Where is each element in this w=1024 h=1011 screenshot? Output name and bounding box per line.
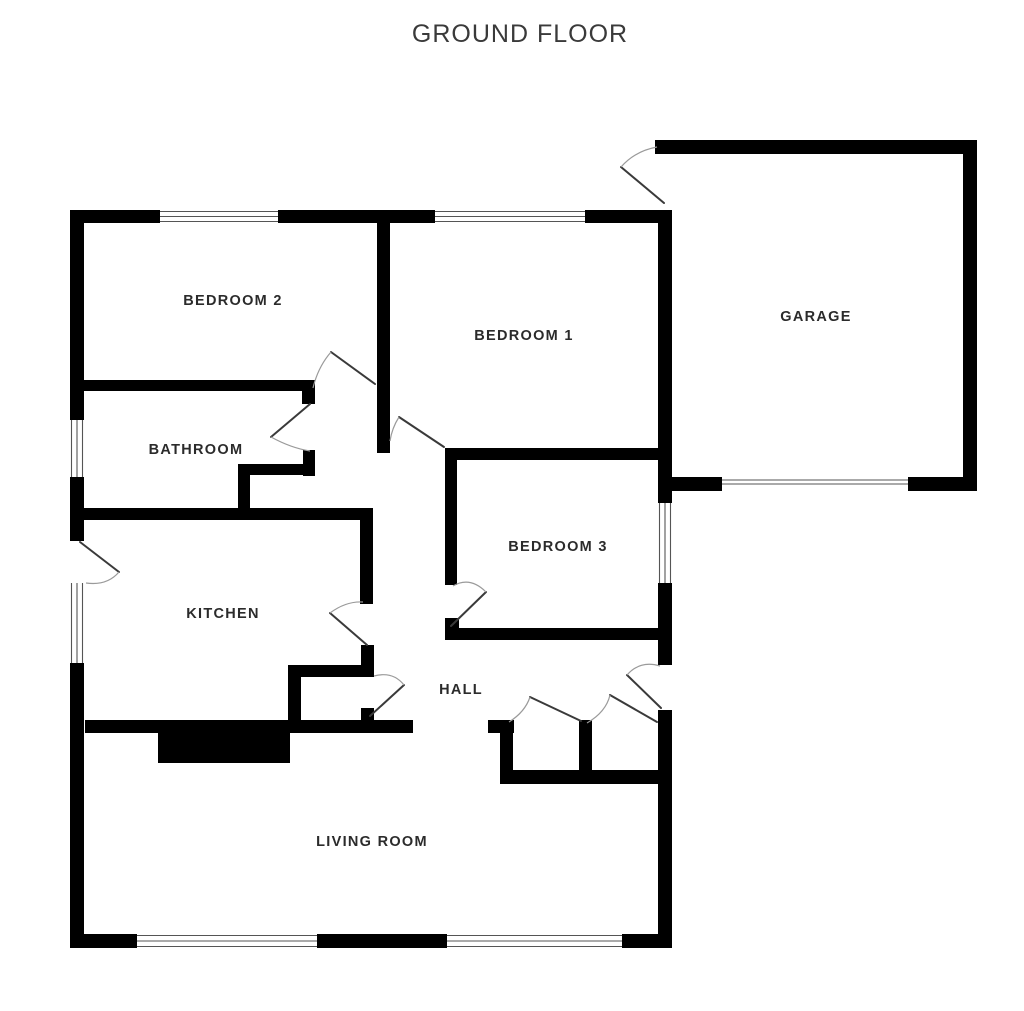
wall-bedroom3-bottom <box>445 628 660 640</box>
door-garage <box>621 147 664 203</box>
label-living-room: LIVING ROOM <box>316 834 428 850</box>
wall-bathroom-kitchen <box>70 508 370 520</box>
fireplace <box>158 733 290 763</box>
window-bedroom2-top <box>160 210 278 223</box>
garage-wall-right <box>963 140 977 490</box>
window-livingroom-bottom-1 <box>137 934 317 948</box>
label-bedroom-2: BEDROOM 2 <box>183 293 283 309</box>
wall-bottom-1 <box>70 934 137 948</box>
wall-kitchen-right <box>360 508 373 604</box>
page-title: GROUND FLOOR <box>412 20 628 48</box>
door-front <box>627 664 661 708</box>
wall-bedroom1-bottom <box>445 448 663 460</box>
window-bedroom1-top <box>435 210 585 223</box>
floorplan-page: GROUND FLOOR <box>0 0 1024 1011</box>
label-garage: GARAGE <box>780 309 851 325</box>
garage-wall-bottom-left <box>660 477 722 491</box>
wall-bedroom2-stub <box>302 380 315 404</box>
label-bedroom-3: BEDROOM 3 <box>508 539 608 555</box>
floorplan-drawing: GROUND FLOOR <box>0 0 1024 1011</box>
wall-bottom-2 <box>317 934 447 948</box>
door-bedroom1 <box>390 417 444 447</box>
window-livingroom-bottom-2 <box>447 934 622 948</box>
door-vestibule-right <box>587 695 657 723</box>
door-livingroom <box>370 675 404 716</box>
wall-top-2 <box>278 210 435 223</box>
label-hall: HALL <box>439 682 483 698</box>
label-kitchen: KITCHEN <box>186 606 260 622</box>
label-bedroom-1: BEDROOM 1 <box>474 328 574 344</box>
door-bedroom2 <box>313 352 375 388</box>
door-kitchen-side <box>80 542 119 584</box>
wall-bedroom3-left <box>445 448 457 585</box>
wall-right-3 <box>658 710 672 948</box>
wall-bedroom1-bedroom2-divider <box>377 210 390 453</box>
window-kitchen-left <box>70 583 84 663</box>
garage-wall-bottom-right <box>908 477 977 491</box>
wall-left-3 <box>70 663 84 948</box>
window-bedroom3-right <box>658 503 672 583</box>
interior-walls <box>70 210 672 784</box>
garage-wall-top <box>655 140 977 154</box>
door-kitchen <box>330 602 367 645</box>
wall-bedroom2-bathroom <box>70 380 315 391</box>
wall-vestibule-middle <box>579 720 592 782</box>
door-bathroom <box>271 404 310 451</box>
door-vestibule-left <box>509 697 581 722</box>
label-bathroom: BATHROOM <box>149 442 244 458</box>
wall-right-2 <box>658 583 672 665</box>
window-bathroom-left <box>70 420 84 477</box>
